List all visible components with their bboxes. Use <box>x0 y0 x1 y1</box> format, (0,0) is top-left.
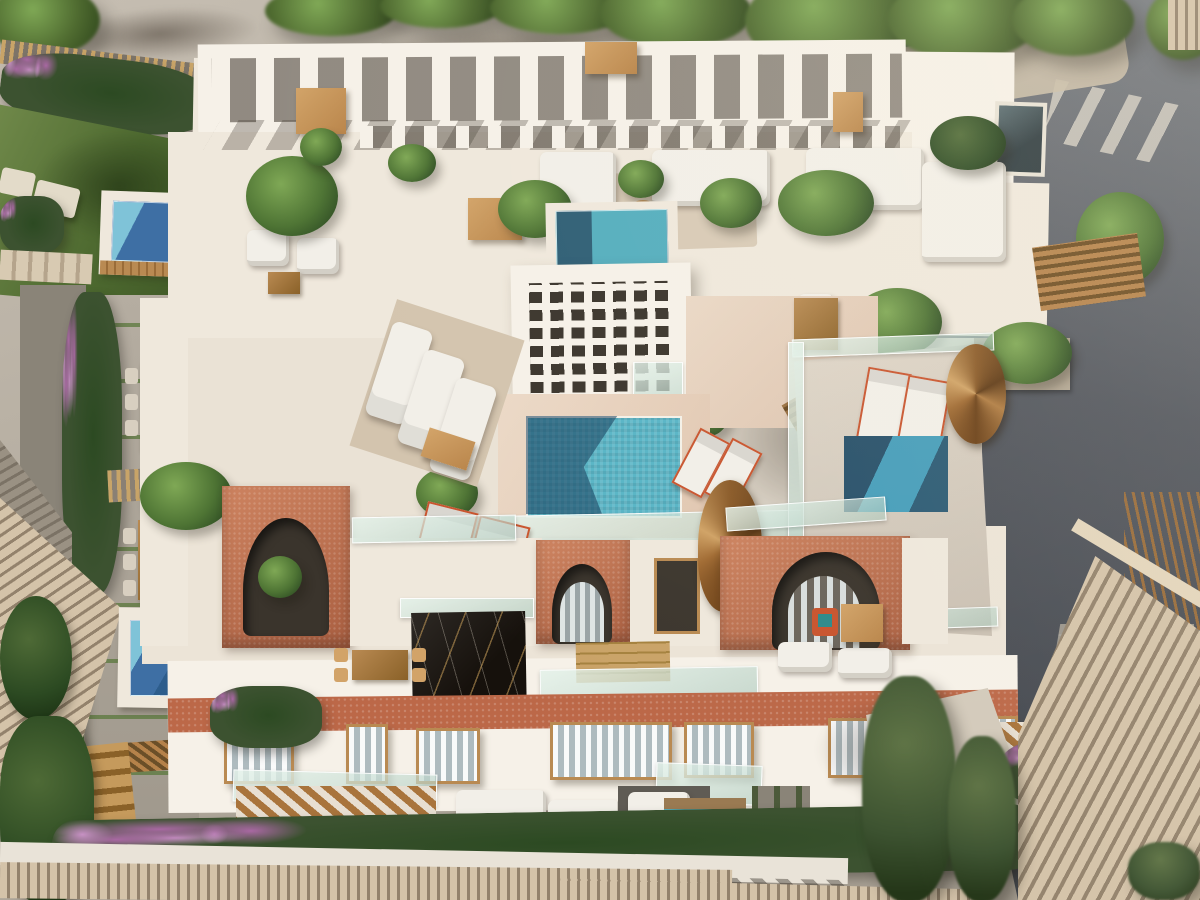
dining-chair <box>125 394 138 410</box>
terrace-sofa <box>778 642 832 672</box>
armchair <box>247 230 289 266</box>
aerial-render-scene <box>0 0 1200 900</box>
sunbed-row <box>0 250 93 285</box>
teal-cushion <box>818 614 832 627</box>
dining-chair <box>123 554 136 570</box>
dining-chair <box>125 368 138 384</box>
cypress-tree <box>1128 842 1200 900</box>
palm-plant <box>140 462 232 530</box>
potted-plant <box>246 156 338 236</box>
doorway <box>654 558 700 634</box>
bougainvillea-clump <box>0 196 64 254</box>
potted-plant <box>388 144 436 182</box>
dining-chair <box>412 648 426 662</box>
dining-chair <box>334 648 348 662</box>
dining-chair <box>125 420 138 436</box>
arch-plant <box>258 556 302 598</box>
dining-chair <box>412 668 426 682</box>
tree-canopy <box>380 0 502 28</box>
side-table <box>268 272 300 294</box>
shrub <box>0 596 72 720</box>
bougainvillea-clump <box>210 686 322 748</box>
spiral-staircase <box>946 344 1006 444</box>
storage-box <box>841 604 883 642</box>
dining-chair <box>123 580 136 596</box>
storage-box <box>833 92 863 132</box>
glass-balustrade <box>352 515 516 544</box>
potted-plant <box>700 178 762 228</box>
potted-plant <box>300 128 342 166</box>
arch-curtain <box>560 582 604 642</box>
storage-box <box>585 42 637 74</box>
facade-window-double <box>550 722 672 780</box>
cypress-tree <box>948 736 1016 900</box>
dining-table <box>352 650 408 680</box>
corner-roof-tiles <box>1168 0 1200 50</box>
tree-canopy <box>265 0 397 36</box>
potted-plant <box>618 160 664 198</box>
pergola-beam-row <box>360 126 900 148</box>
arcade-end-wall <box>902 538 948 644</box>
terrace-sofa <box>838 648 892 678</box>
lounge-sofa <box>922 162 1006 262</box>
dining-chair <box>334 668 348 682</box>
cypress-tree <box>862 676 956 900</box>
dining-chair <box>123 528 136 544</box>
armchair <box>297 238 339 274</box>
potted-plant <box>930 116 1006 170</box>
potted-plant <box>778 170 874 236</box>
upper-pool-water <box>555 209 668 271</box>
